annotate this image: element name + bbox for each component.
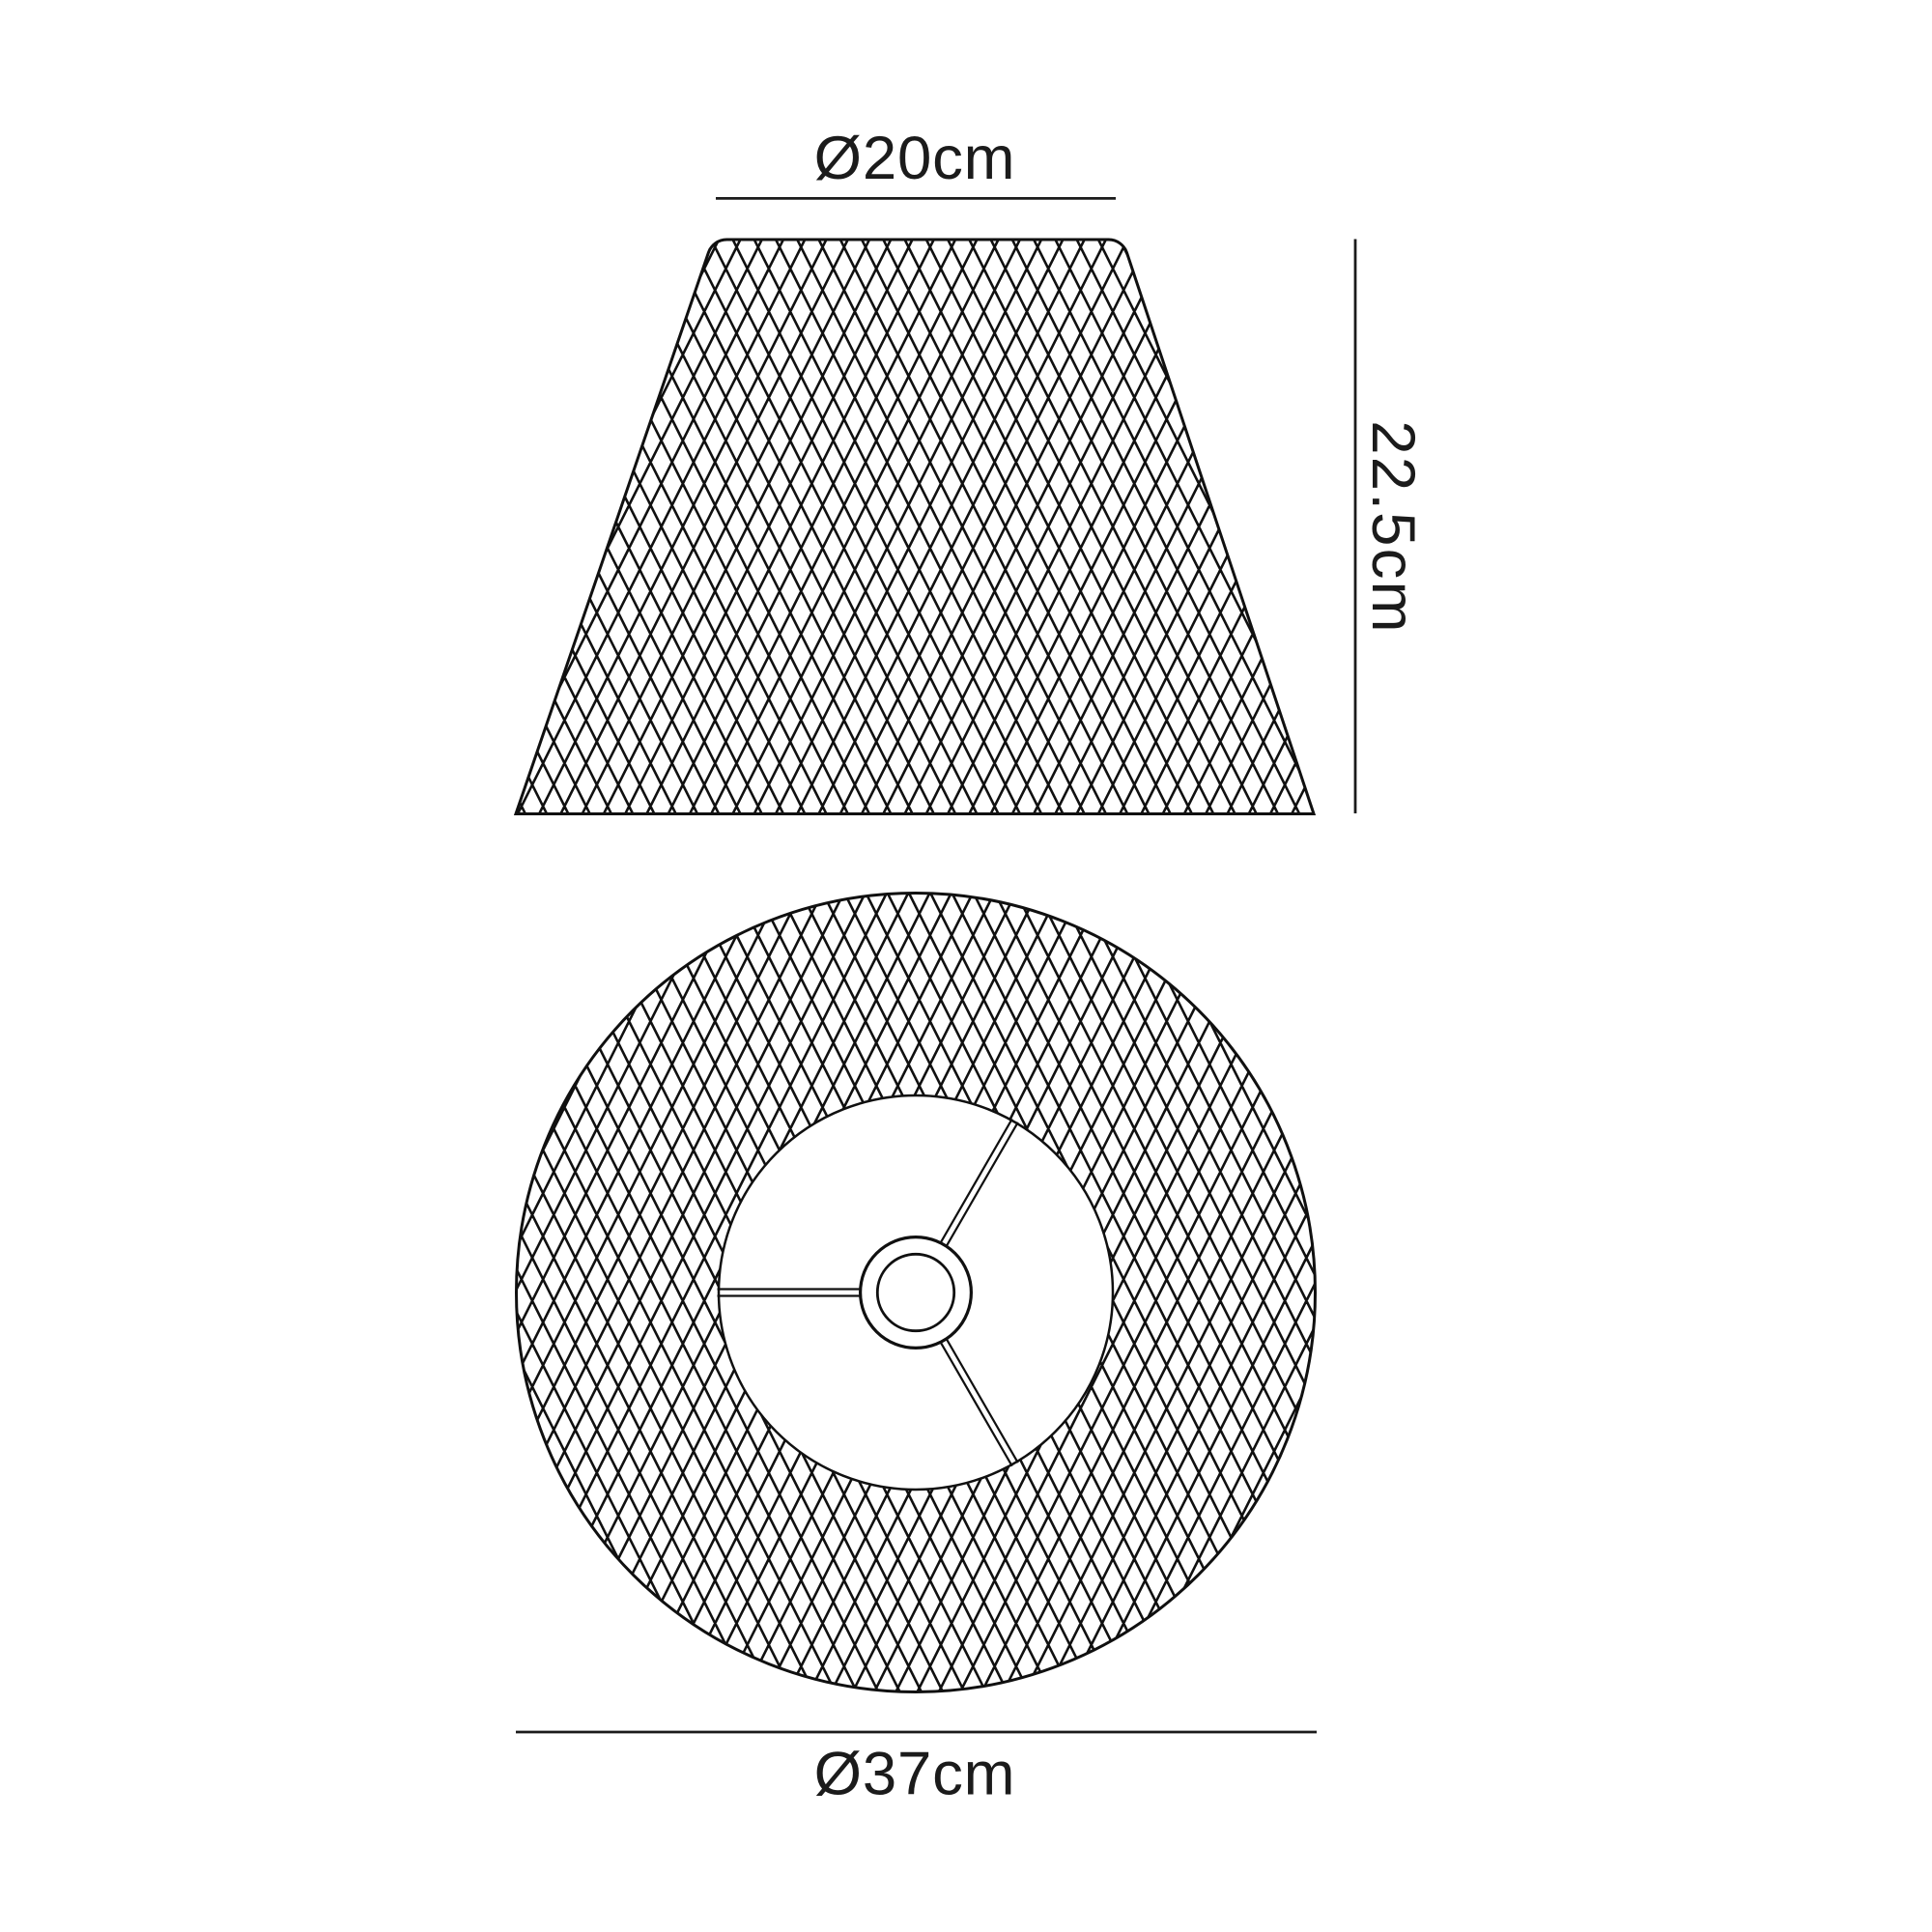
svg-text:Ø37cm: Ø37cm: [814, 1741, 1016, 1808]
svg-text:Ø20cm: Ø20cm: [814, 125, 1016, 192]
svg-text:22.5cm: 22.5cm: [1359, 420, 1427, 634]
